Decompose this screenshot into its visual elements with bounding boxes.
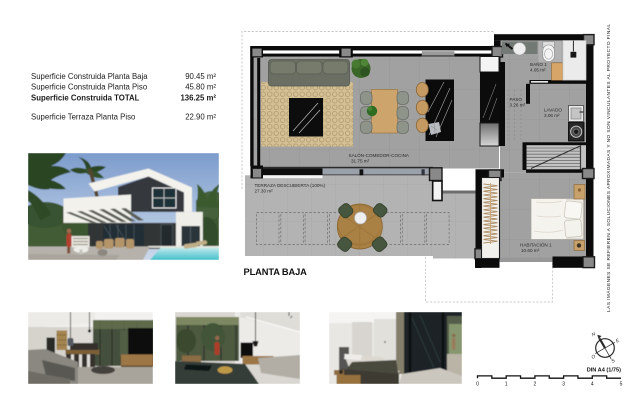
svg-text:TERRAZA DESCUBIERTA (100%): TERRAZA DESCUBIERTA (100%) (255, 183, 326, 188)
svg-text:4.05 m²: 4.05 m² (530, 68, 546, 73)
svg-text:3.06 m²: 3.06 m² (544, 113, 560, 118)
svg-text:4: 4 (591, 382, 594, 388)
svg-text:10.60 m²: 10.60 m² (521, 248, 540, 253)
svg-text:Superficie Terraza Planta Piso: Superficie Terraza Planta Piso (31, 113, 136, 122)
svg-text:Superficie Construida Planta B: Superficie Construida Planta Baja (31, 72, 148, 81)
svg-text:2: 2 (534, 382, 537, 388)
svg-text:LAVADO: LAVADO (544, 108, 562, 113)
svg-text:Superficie Construida TOTAL: Superficie Construida TOTAL (31, 93, 140, 102)
svg-text:BAÑO 1: BAÑO 1 (530, 61, 547, 67)
svg-text:0: 0 (476, 382, 479, 388)
svg-text:Superficie Construida Planta P: Superficie Construida Planta Piso (31, 82, 148, 91)
svg-text:3: 3 (562, 382, 565, 388)
svg-text:90.45 m²: 90.45 m² (185, 72, 216, 81)
svg-text:5: 5 (620, 382, 623, 388)
svg-text:HABITACIÓN 1: HABITACIÓN 1 (520, 242, 552, 248)
svg-text:PLANTA BAJA: PLANTA BAJA (244, 267, 308, 277)
svg-text:LAS IMÁGENES SE REFIEREN A SOL: LAS IMÁGENES SE REFIEREN A SOLUCIONES AP… (605, 24, 612, 312)
svg-text:DIN A4 (1/75): DIN A4 (1/75) (587, 368, 621, 374)
svg-text:PASO: PASO (510, 97, 523, 102)
svg-text:SALÓN-COMEDOR-COCINA: SALÓN-COMEDOR-COCINA (349, 152, 410, 158)
svg-text:136.25 m²: 136.25 m² (180, 93, 216, 102)
svg-text:3.26 m²: 3.26 m² (510, 103, 526, 108)
svg-text:27.30 m²: 27.30 m² (255, 189, 274, 194)
svg-text:22.90 m²: 22.90 m² (185, 113, 216, 122)
svg-text:1: 1 (505, 382, 508, 388)
svg-text:45.80 m²: 45.80 m² (185, 82, 216, 91)
svg-text:31.75 m²: 31.75 m² (351, 159, 370, 164)
